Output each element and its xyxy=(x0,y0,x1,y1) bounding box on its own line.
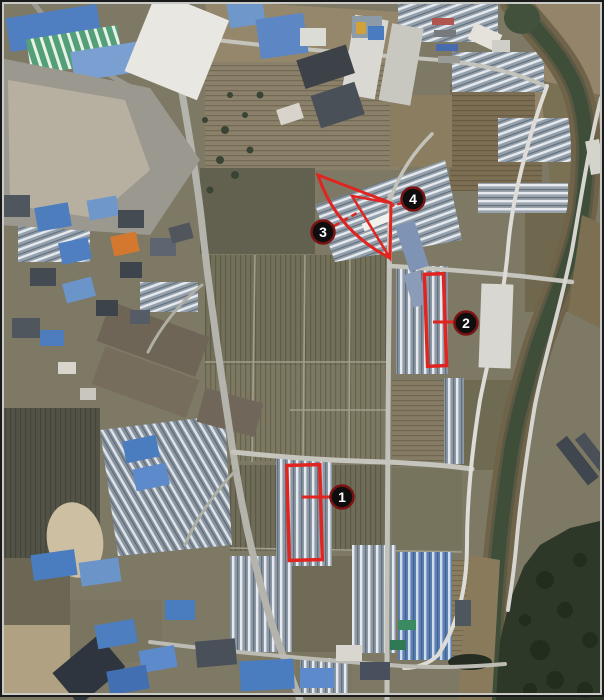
satellite-photo: 1 2 3 4 xyxy=(0,0,604,700)
screenshot-stage: 1 2 3 4 xyxy=(0,0,604,700)
marker-2: 2 xyxy=(455,312,478,335)
marker-3-label: 3 xyxy=(319,224,327,240)
marker-2-label: 2 xyxy=(462,315,470,331)
marker-4-label: 4 xyxy=(409,191,417,207)
marker-1: 1 xyxy=(331,486,354,509)
marker-1-label: 1 xyxy=(338,489,346,505)
marker-4: 4 xyxy=(402,188,425,211)
marker-3: 3 xyxy=(312,221,335,244)
